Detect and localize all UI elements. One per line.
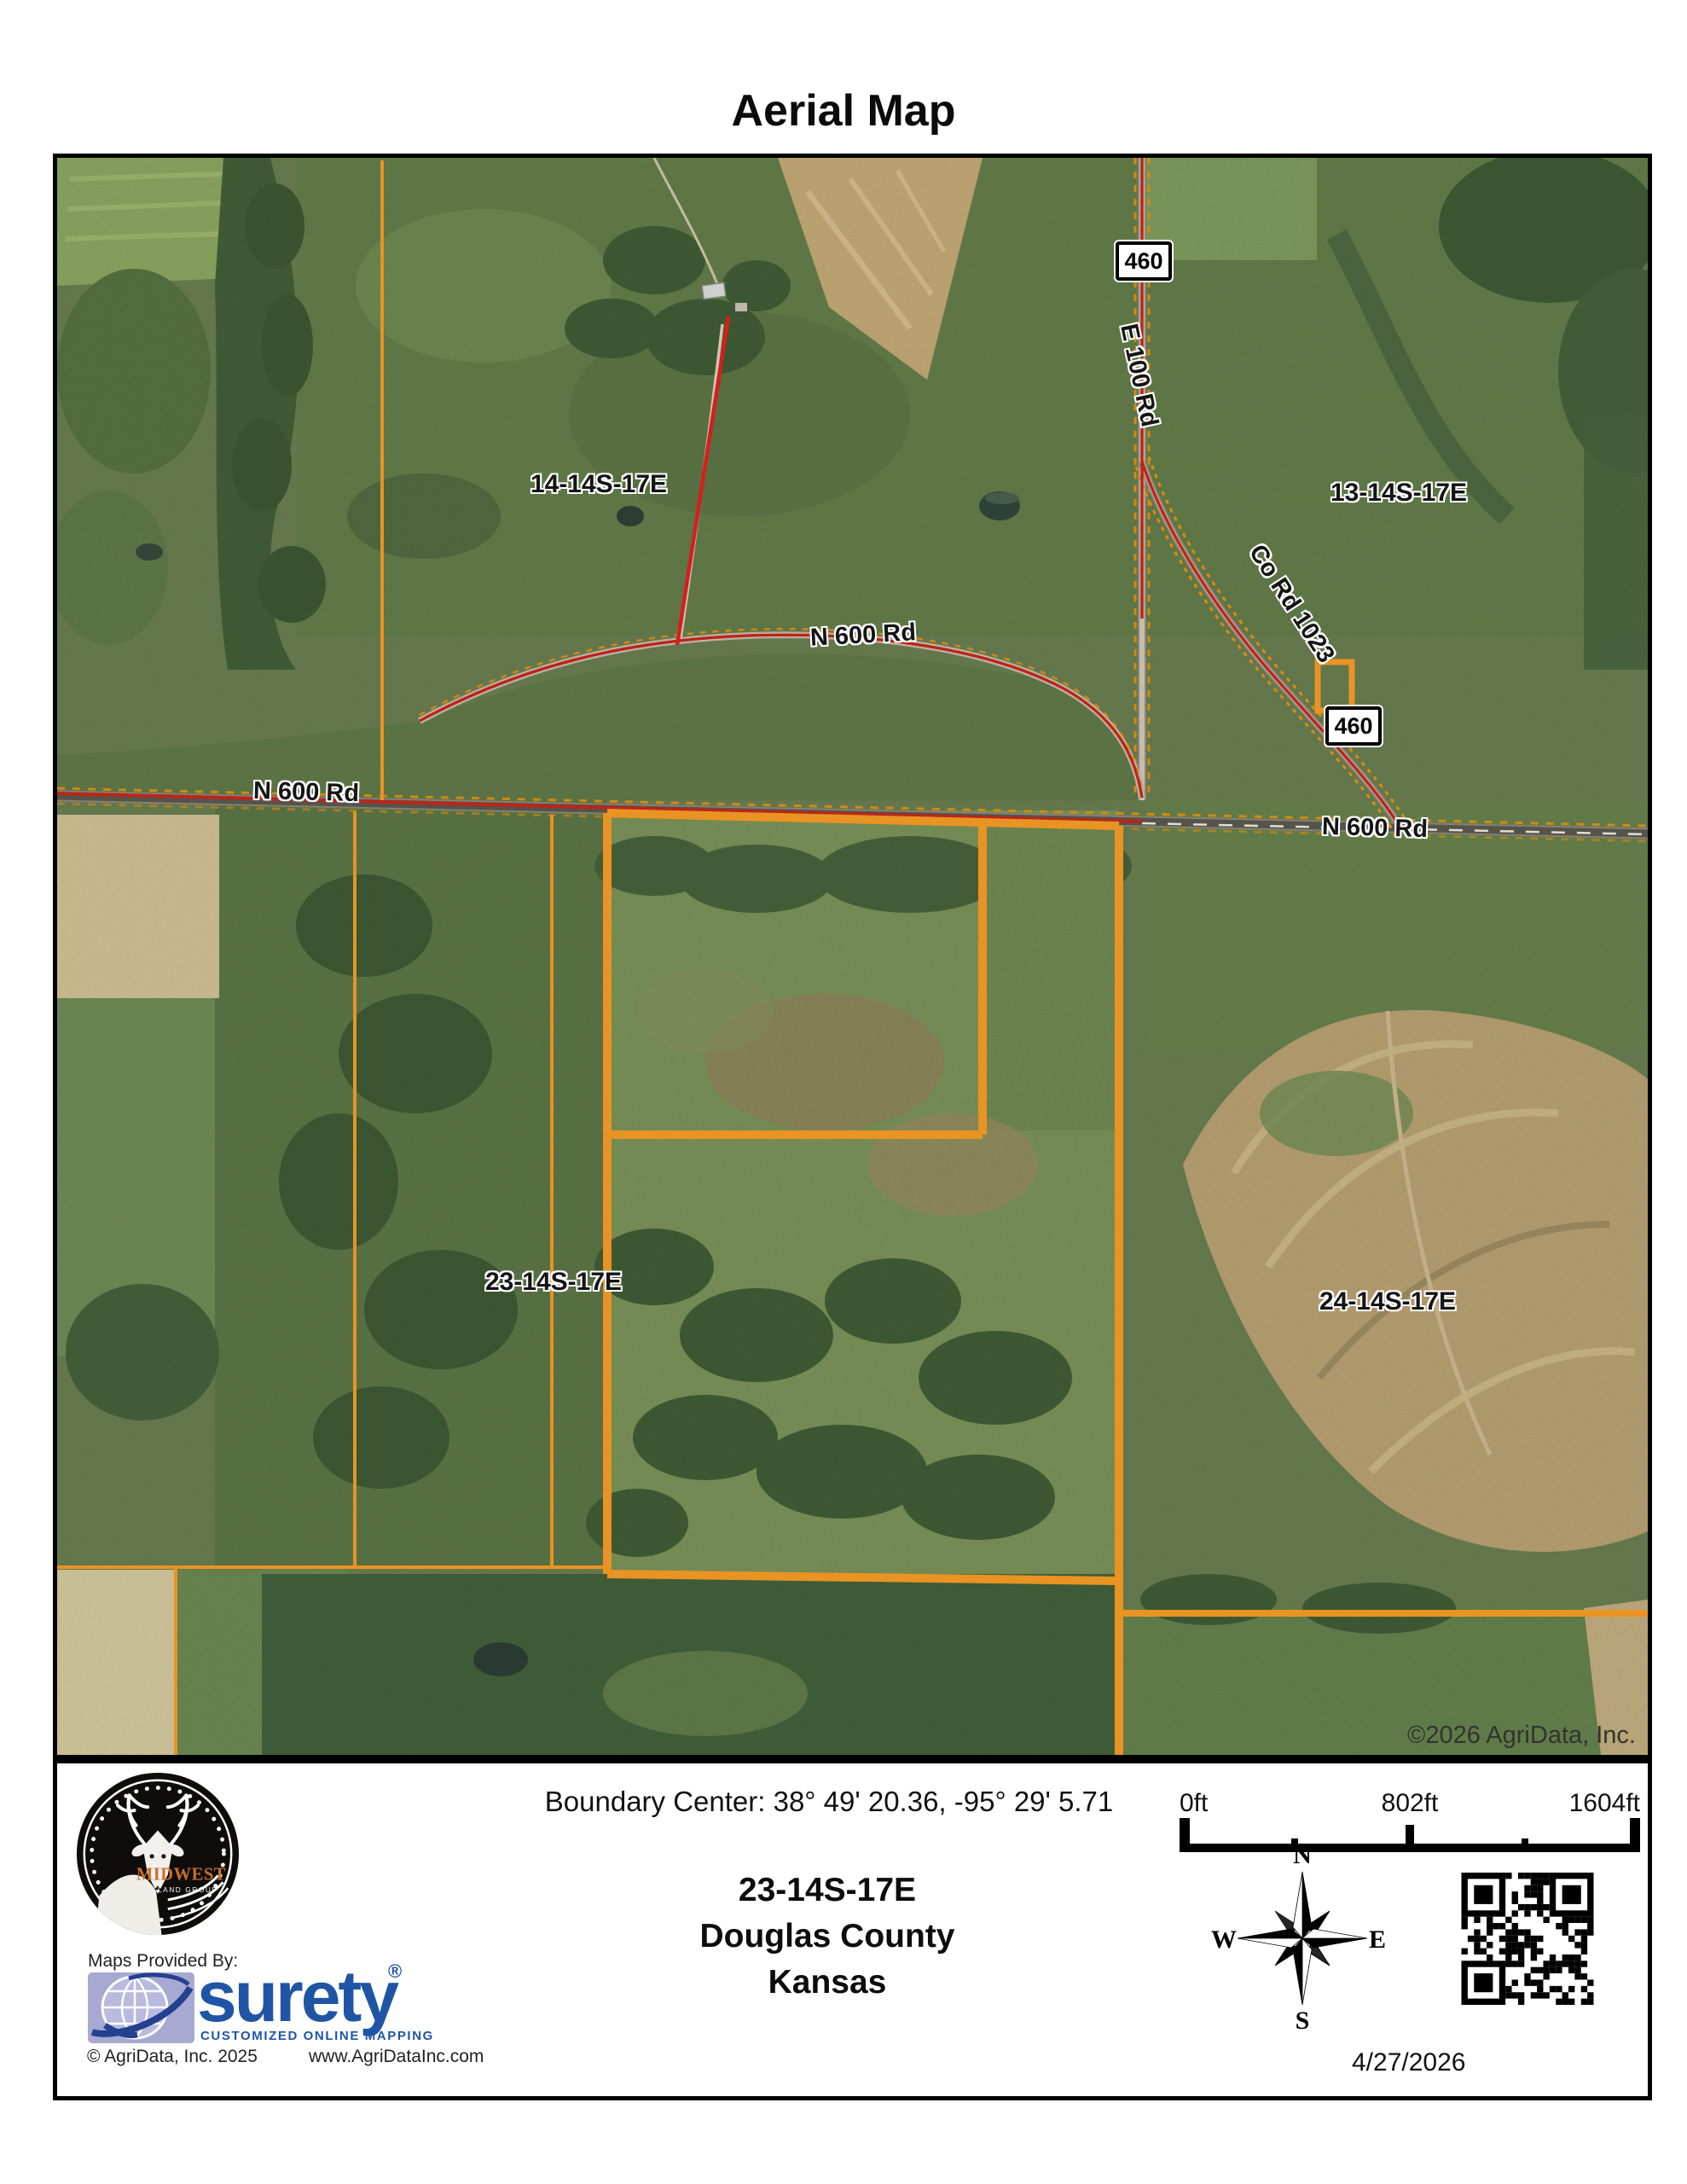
section-label-23: 23-14S-17E	[485, 1268, 622, 1297]
compass-e-label: E	[1369, 1926, 1386, 1954]
globe-icon	[88, 1972, 194, 2043]
qr-code	[1460, 1873, 1595, 2005]
highway-460-shield-south: 460	[1325, 706, 1382, 746]
deer-logo-icon: MIDWEST LAND GROUP	[74, 1770, 241, 1937]
surety-logo: surety ® CUSTOMIZED ONLINE MAPPING	[88, 1971, 514, 2047]
location-block: 23-14S-17E Douglas County Kansas	[700, 1867, 955, 2006]
road-label-n600rd-curve: N 600 Rd	[809, 619, 917, 652]
scale-end-label: 1604ft	[1569, 1789, 1640, 1818]
map-copyright: ©2026 AgriData, Inc.	[1407, 1722, 1636, 1750]
compass-w-label: W	[1211, 1926, 1237, 1954]
land-group-logo-text: LAND GROUP	[158, 1885, 218, 1894]
footer: MIDWEST LAND GROUP Maps Provided By:	[53, 1759, 1652, 2100]
midwest-logo-text: MIDWEST	[136, 1865, 226, 1884]
qr-code-icon	[1460, 1873, 1595, 2005]
road-label-n600rd-west: N 600 Rd	[253, 777, 360, 808]
page-title: Aerial Map	[0, 85, 1687, 136]
compass-rose: N E S W	[1209, 1840, 1396, 2036]
agridata-website: www.AgriDataInc.com	[309, 2047, 484, 2067]
highway-460-shield-north: 460	[1116, 241, 1172, 281]
compass-s-label: S	[1296, 2007, 1310, 2035]
compass-n-label: N	[1293, 1841, 1312, 1869]
map-date: 4/27/2026	[1352, 2048, 1465, 2077]
boundary-center-coordinates: Boundary Center: 38° 49' 20.36, -95° 29'…	[545, 1786, 1113, 1818]
registered-mark: ®	[388, 1960, 402, 1983]
scale-mid-label: 802ft	[1382, 1789, 1439, 1818]
midwest-land-group-logo: MIDWEST LAND GROUP	[74, 1770, 241, 1937]
page: Aerial Map	[0, 0, 1687, 2184]
location-state: Kansas	[700, 1960, 955, 2006]
aerial-map: 14-14S-17E 13-14S-17E 23-14S-17E 24-14S-…	[53, 154, 1652, 1759]
location-county: Douglas County	[700, 1914, 955, 1960]
location-section: 23-14S-17E	[700, 1867, 955, 1914]
compass-rose-icon: N E S W	[1209, 1840, 1396, 2036]
agridata-copyright: © AgriData, Inc. 2025	[87, 2047, 258, 2067]
scale-start-label: 0ft	[1180, 1789, 1208, 1818]
section-label-13: 13-14S-17E	[1330, 479, 1467, 508]
road-label-n600rd-east: N 600 Rd	[1322, 813, 1429, 844]
aerial-imagery-icon	[57, 158, 1648, 1755]
surety-tagline: CUSTOMIZED ONLINE MAPPING	[200, 2029, 434, 2043]
surety-wordmark: surety	[197, 1955, 397, 2038]
section-label-14: 14-14S-17E	[530, 470, 667, 499]
section-label-24: 24-14S-17E	[1319, 1287, 1456, 1316]
